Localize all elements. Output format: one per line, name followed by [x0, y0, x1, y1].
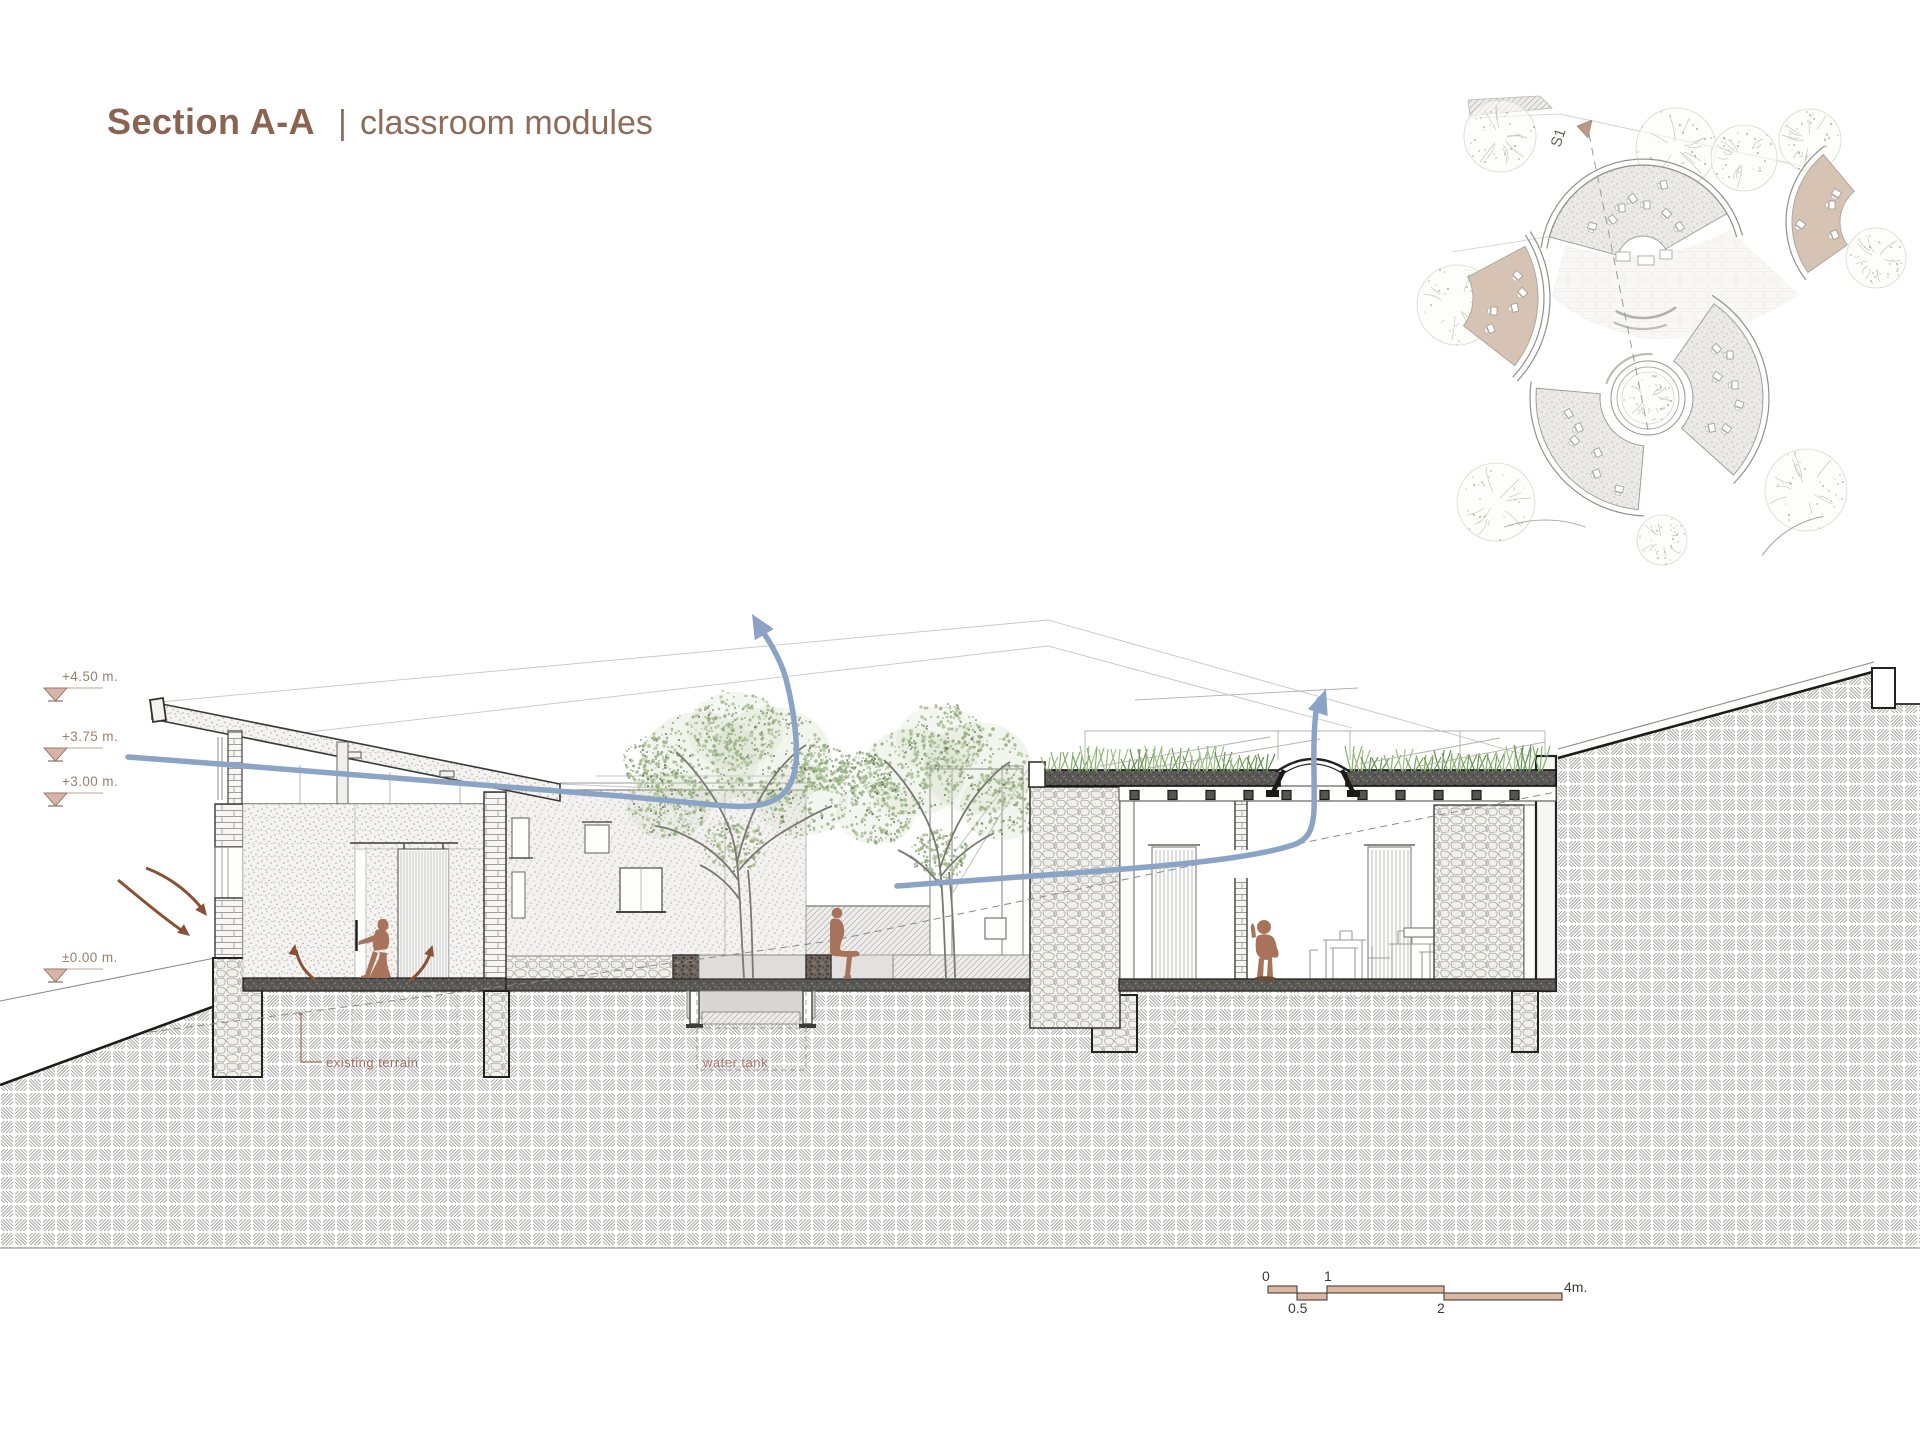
svg-text:1: 1 — [1324, 1268, 1332, 1284]
svg-text:existing terrain: existing terrain — [326, 1055, 419, 1070]
svg-text:Section A-A: Section A-A — [107, 101, 315, 142]
svg-text:+4.50 m.: +4.50 m. — [62, 669, 118, 684]
svg-text:water tank: water tank — [702, 1055, 768, 1070]
svg-text:+3.00 m.: +3.00 m. — [62, 774, 118, 789]
svg-text:+3.75 m.: +3.75 m. — [62, 729, 118, 744]
svg-text:4m.: 4m. — [1564, 1279, 1587, 1295]
svg-text:0.5: 0.5 — [1288, 1300, 1308, 1316]
svg-text:classroom modules: classroom modules — [360, 104, 653, 142]
svg-text:±0.00 m.: ±0.00 m. — [62, 950, 118, 965]
svg-text:|: | — [338, 104, 347, 142]
svg-text:2: 2 — [1437, 1300, 1445, 1316]
svg-text:0: 0 — [1262, 1268, 1270, 1284]
